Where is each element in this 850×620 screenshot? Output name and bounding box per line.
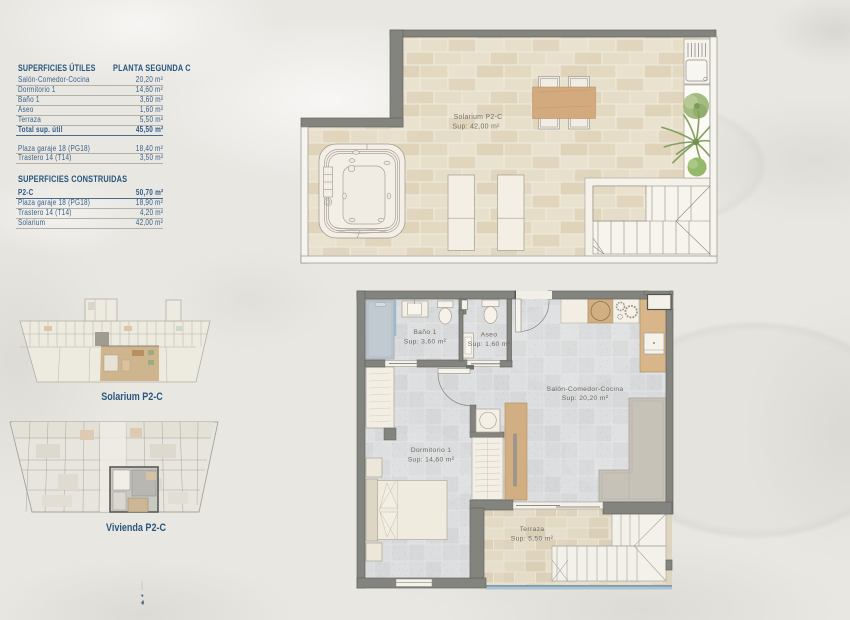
svg-text:Vivienda P2-C: Vivienda P2-C bbox=[106, 522, 166, 534]
svg-text:Solarium P2-C: Solarium P2-C bbox=[101, 391, 163, 403]
